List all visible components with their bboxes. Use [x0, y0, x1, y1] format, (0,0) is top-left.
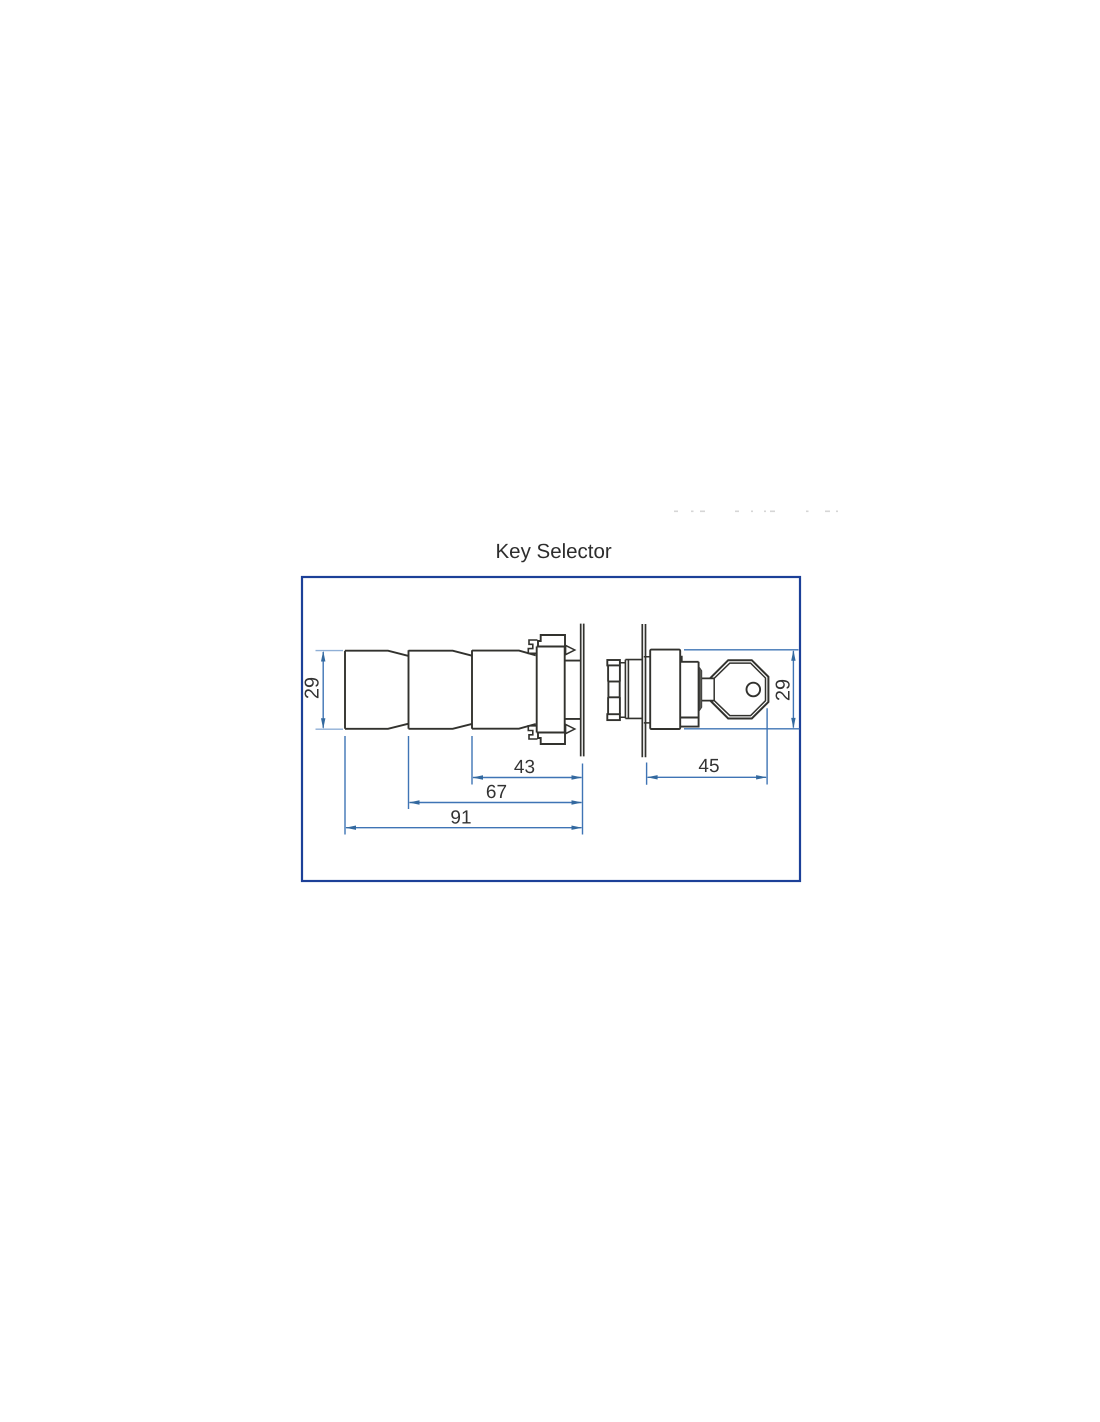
svg-text:Key Selector: Key Selector [496, 540, 612, 563]
svg-text:29: 29 [301, 677, 323, 699]
svg-text:43: 43 [514, 757, 535, 778]
svg-text:67: 67 [486, 782, 507, 803]
svg-text:45: 45 [698, 756, 719, 777]
svg-text:91: 91 [450, 808, 471, 829]
svg-text:29: 29 [772, 679, 794, 701]
